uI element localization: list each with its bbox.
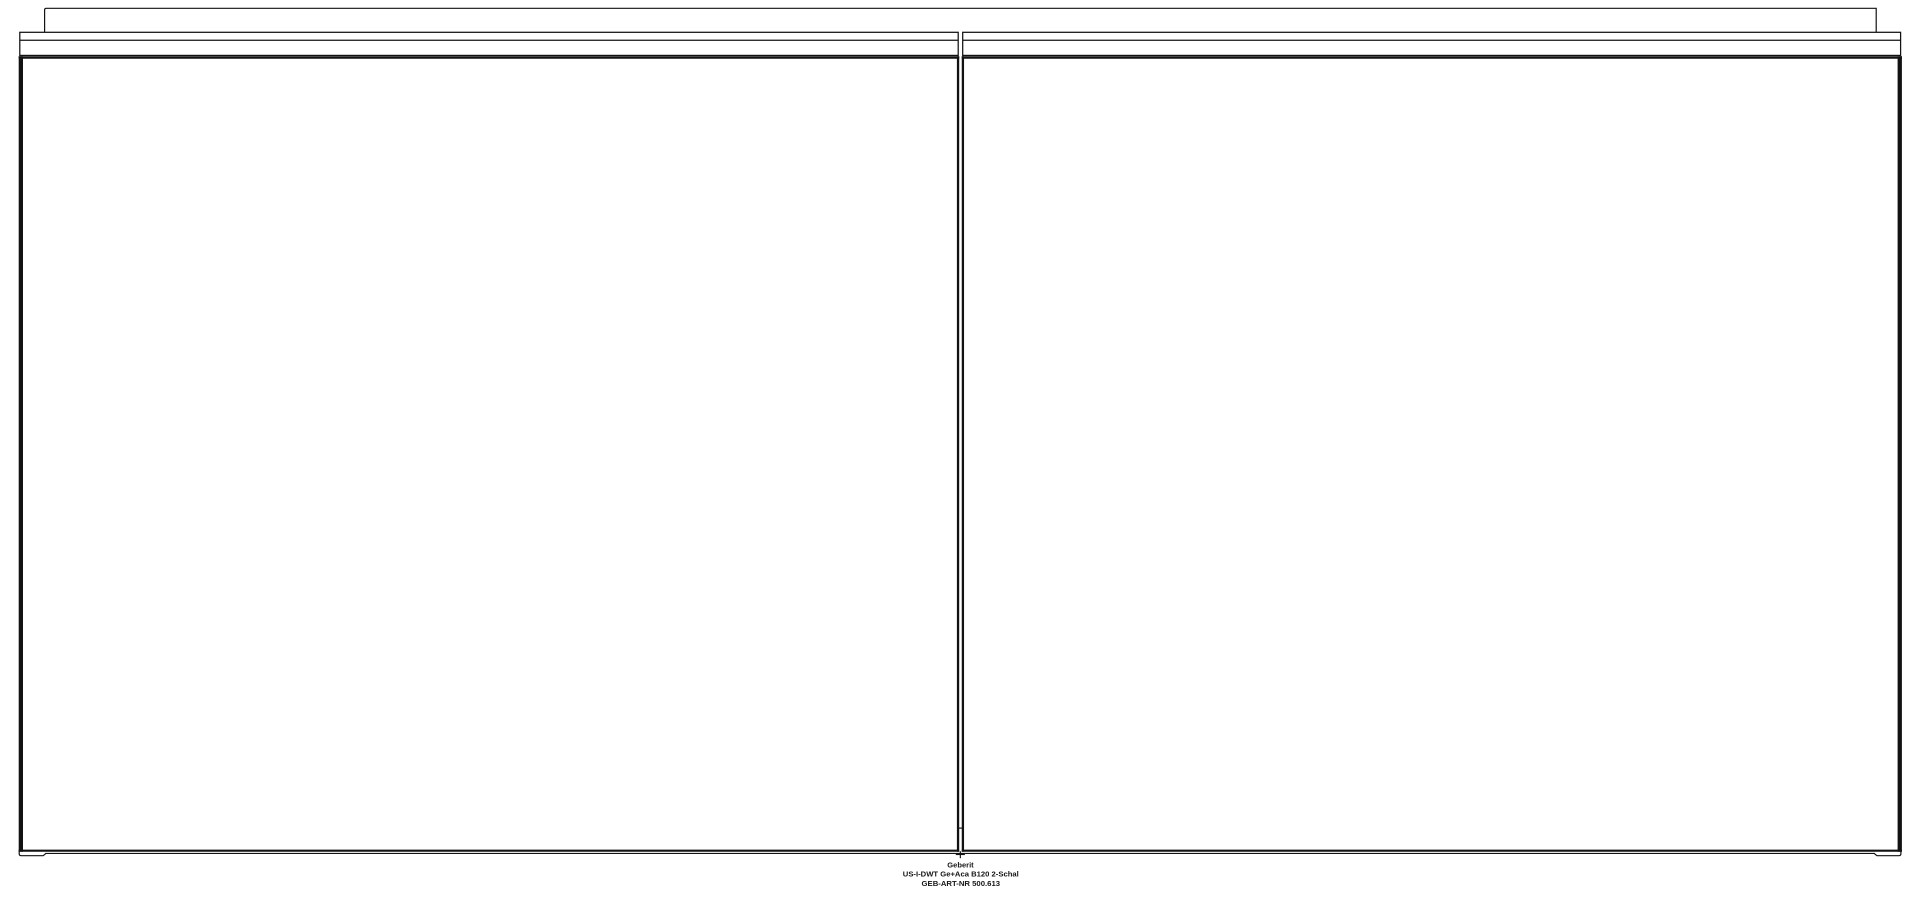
svg-text:GEB-ART-NR 500.613: GEB-ART-NR 500.613	[922, 881, 1001, 888]
svg-text:US-I-DWT Ge+Aca B120 2-Schal: US-I-DWT Ge+Aca B120 2-Schal	[903, 871, 1019, 878]
svg-text:Geberit: Geberit	[947, 863, 974, 870]
